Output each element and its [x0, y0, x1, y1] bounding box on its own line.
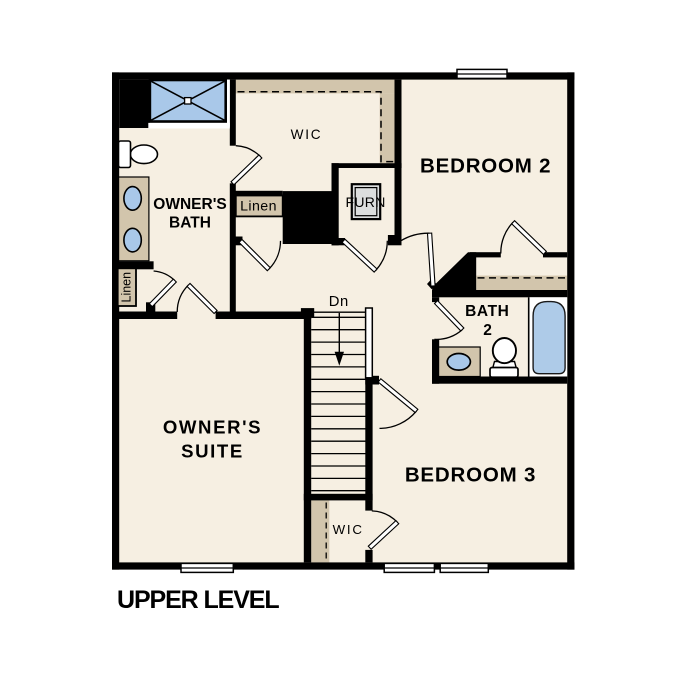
svg-text:OWNER'S: OWNER'S — [153, 196, 226, 213]
svg-text:BEDROOM 3: BEDROOM 3 — [405, 463, 536, 486]
svg-text:WIC: WIC — [333, 522, 364, 537]
svg-text:OWNER'S: OWNER'S — [163, 417, 262, 438]
svg-text:UPPER LEVEL: UPPER LEVEL — [117, 586, 279, 614]
svg-text:SUITE: SUITE — [181, 441, 244, 462]
svg-text:Dn: Dn — [329, 294, 349, 310]
svg-text:Linen: Linen — [240, 198, 277, 214]
svg-text:2: 2 — [483, 322, 492, 339]
svg-text:BATH: BATH — [465, 303, 509, 320]
svg-text:BATH: BATH — [169, 215, 211, 232]
svg-text:Linen: Linen — [120, 272, 134, 303]
svg-text:BEDROOM 2: BEDROOM 2 — [420, 154, 551, 177]
svg-text:FURN: FURN — [346, 194, 386, 210]
svg-text:WIC: WIC — [291, 127, 323, 142]
